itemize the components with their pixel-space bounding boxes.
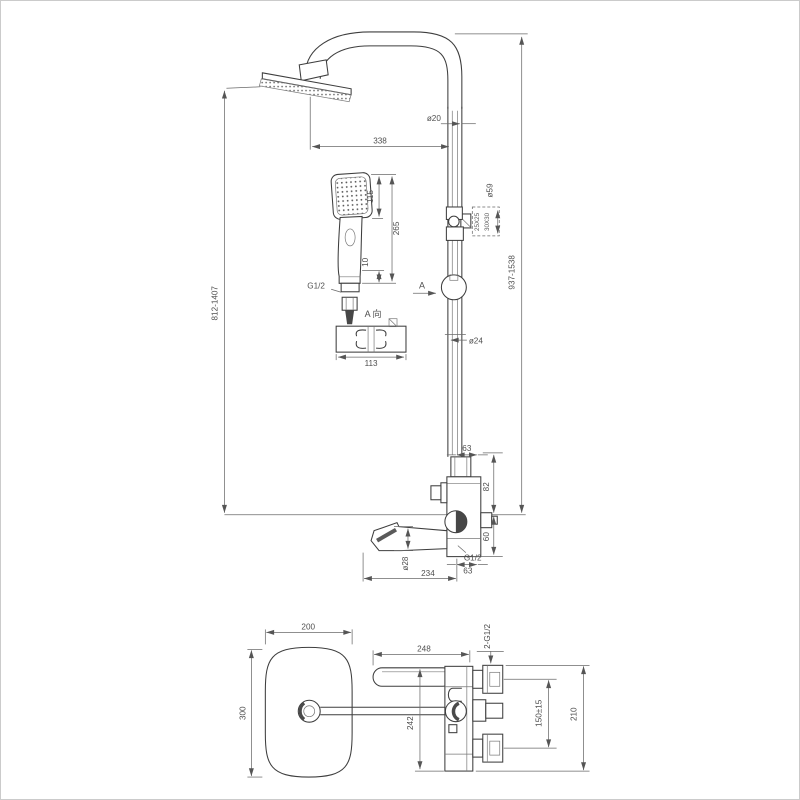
plan-lever-handle bbox=[373, 668, 452, 686]
plan-body-span-label: 242 bbox=[406, 716, 415, 730]
dia24-label: ø24 bbox=[445, 335, 483, 346]
mixer-front: 63 82 60 G1/2 63 234 ø28 bbox=[363, 444, 503, 582]
mixer-top-offset-label: 63 bbox=[462, 444, 472, 453]
plan-shower-head: 200 300 bbox=[238, 622, 444, 777]
spout-reach-label: 234 bbox=[421, 569, 435, 578]
hand-shower: 115 265 10 G1/2 bbox=[307, 172, 401, 292]
plan-inlet-bottom bbox=[473, 734, 503, 762]
plan-view: 200 300 bbox=[238, 622, 589, 777]
plan-mixer: 248 242 2-G1/2 150±15 210 bbox=[373, 623, 589, 771]
pipe-holder bbox=[441, 275, 466, 300]
head-connector bbox=[299, 60, 328, 81]
slider-note-line2: 30X30 bbox=[484, 212, 491, 231]
hand-shower-outlet-label: 10 bbox=[361, 257, 370, 267]
dia20-text: ø20 bbox=[427, 114, 442, 123]
bracket-view-label: A 向 bbox=[365, 308, 382, 319]
dim-height-left-label: 812-1407 bbox=[210, 286, 219, 321]
section-marker-a: A bbox=[413, 280, 436, 293]
mixer-bottom-width-label: 63 bbox=[463, 567, 473, 576]
hand-shower-handle bbox=[338, 216, 362, 283]
plan-lever-reach-label: 248 bbox=[417, 644, 431, 653]
technical-drawing: 338 ø20 812-1407 937-1538 bbox=[1, 1, 799, 799]
dia20-label: ø20 bbox=[427, 114, 476, 123]
spout-dia-label: ø28 bbox=[401, 556, 410, 571]
hand-shower-thread-label: G1/2 bbox=[307, 281, 325, 290]
slider-assembly: 25X25 30X30 ø59 bbox=[446, 183, 499, 240]
section-arrow-label: A bbox=[419, 280, 425, 290]
mixer-upper-height-label: 82 bbox=[482, 482, 491, 492]
wall-anchor bbox=[342, 297, 357, 324]
plan-inlet-thread-label: 2-G1/2 bbox=[483, 623, 492, 648]
dim-height-right-label: 937-1538 bbox=[508, 255, 517, 290]
slider-note-line1: 25X25 bbox=[474, 212, 481, 231]
plan-head-depth-label: 300 bbox=[238, 706, 247, 720]
plan-head-width-label: 200 bbox=[301, 622, 315, 631]
dim-height-right: 937-1538 bbox=[455, 34, 528, 513]
front-view: 338 ø20 812-1407 937-1538 bbox=[210, 32, 527, 582]
plan-inlet-top bbox=[473, 665, 503, 693]
slider-dia-label: ø59 bbox=[485, 183, 494, 198]
bracket-width-label: 113 bbox=[365, 359, 378, 368]
mixer-lower-height-label: 60 bbox=[482, 532, 491, 542]
plan-inlet-spacing-label: 150±15 bbox=[535, 699, 544, 727]
dia24-text: ø24 bbox=[469, 337, 484, 346]
mixer-outlet-thread-label: G1/2 bbox=[464, 554, 482, 563]
plan-overall-depth-label: 210 bbox=[570, 707, 579, 721]
drawing-page: 338 ø20 812-1407 937-1538 bbox=[0, 0, 800, 800]
dim-arm-reach-label: 338 bbox=[373, 137, 387, 146]
dim-height-left: 812-1407 bbox=[210, 87, 260, 513]
hand-shower-length-label: 265 bbox=[392, 221, 401, 235]
hand-shower-width-label: 115 bbox=[366, 190, 375, 203]
